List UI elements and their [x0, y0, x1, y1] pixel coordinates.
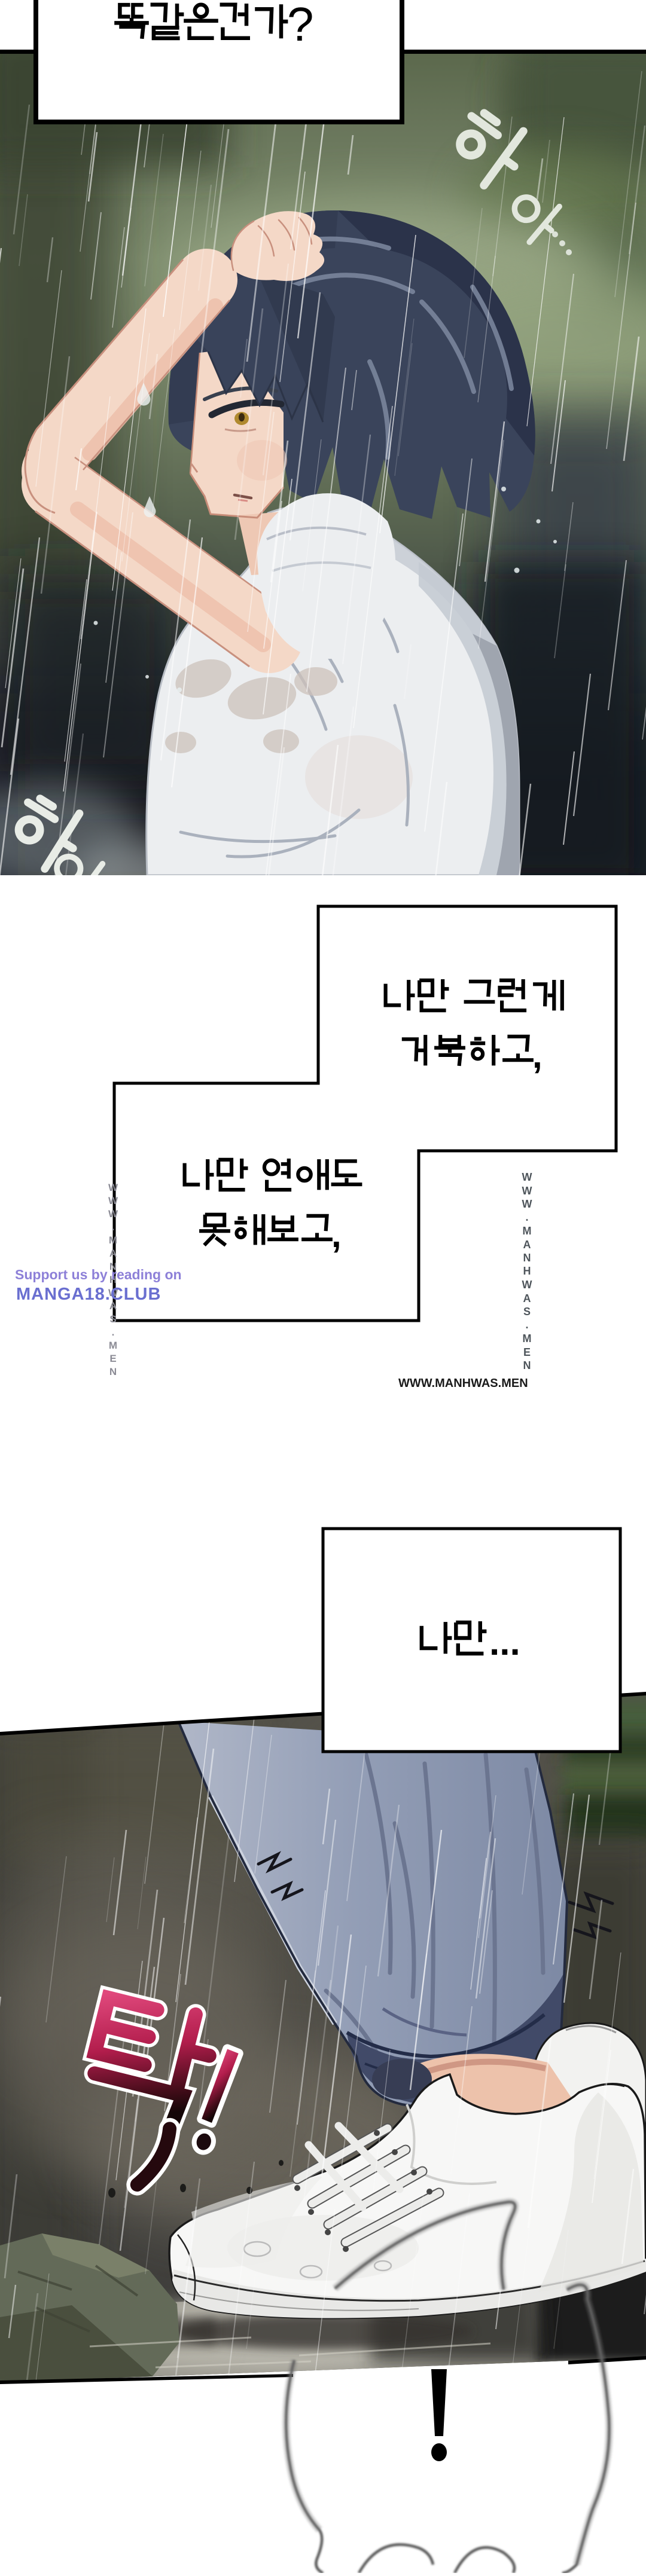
- svg-text:,: ,: [532, 1035, 543, 1075]
- svg-text:M: M: [109, 1340, 117, 1351]
- svg-text:W: W: [522, 1185, 532, 1197]
- svg-text:E: E: [109, 1353, 116, 1364]
- svg-text:,: ,: [331, 1215, 342, 1255]
- svg-text:M: M: [523, 1225, 532, 1237]
- svg-text:Support us by reading on: Support us by reading on: [15, 1267, 182, 1282]
- svg-text:...: ...: [489, 1622, 520, 1663]
- svg-text:W: W: [522, 1171, 532, 1183]
- svg-text:W: W: [108, 1182, 118, 1193]
- svg-text:N: N: [109, 1366, 117, 1377]
- svg-text:W: W: [108, 1195, 118, 1206]
- svg-text:W: W: [522, 1279, 532, 1291]
- svg-text:?: ?: [287, 0, 314, 51]
- svg-text:E: E: [523, 1346, 531, 1358]
- svg-text:.: .: [525, 1319, 528, 1331]
- svg-text:W: W: [522, 1198, 532, 1210]
- svg-text:S: S: [523, 1306, 531, 1318]
- svg-text:MANGA18.CLUB: MANGA18.CLUB: [16, 1285, 161, 1304]
- svg-text:S: S: [109, 1313, 116, 1325]
- svg-text:.: .: [112, 1327, 115, 1338]
- svg-text:N: N: [523, 1252, 531, 1264]
- svg-text:A: A: [523, 1239, 531, 1251]
- svg-text:M: M: [109, 1234, 117, 1246]
- svg-text:H: H: [523, 1265, 531, 1277]
- svg-text:.: .: [525, 1211, 528, 1223]
- svg-text:W: W: [108, 1208, 118, 1220]
- svg-text:.: .: [112, 1221, 115, 1233]
- svg-text:A: A: [109, 1248, 117, 1259]
- svg-text:A: A: [523, 1292, 531, 1304]
- svg-text:M: M: [523, 1333, 532, 1344]
- svg-text:N: N: [523, 1359, 531, 1371]
- svg-text:WWW.MANHWAS.MEN: WWW.MANHWAS.MEN: [398, 1377, 528, 1390]
